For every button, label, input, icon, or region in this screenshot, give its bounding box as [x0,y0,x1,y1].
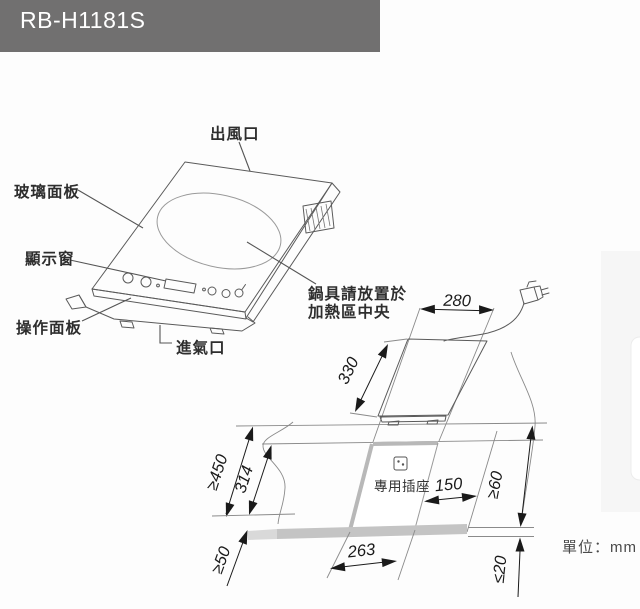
svg-text:314: 314 [231,464,257,496]
svg-text:280: 280 [442,292,472,311]
dim-263-text: 263 [346,541,377,562]
leader-air-inlet [160,325,172,343]
svg-text:150: 150 [434,475,464,495]
dim-263: 263 [330,541,397,572]
label-air-outlet: 出風口 [210,124,260,143]
glass-top [92,162,332,312]
hob-foot-right [210,328,224,334]
label-display-window: 顯示窗 [25,249,75,268]
leader-air-outlet [239,142,250,171]
svg-text:≤20: ≤20 [490,554,511,584]
unit-note: 單位：mm [562,539,637,556]
hob-illustration: 出風口 玻璃面板 顯示窗 操作面板 進氣口 鍋具請放置於 加熱區中央 [14,124,407,357]
label-pot-note-2: 加熱區中央 [307,302,391,321]
side-vent [303,201,334,233]
cooktop-top [378,339,487,416]
ext-263-left [327,532,350,578]
dim-314: 314 [231,445,271,515]
control-panel-elements [123,273,246,298]
label-air-inlet: 進氣口 [176,338,226,357]
counter-band-left [248,529,277,540]
leader-glass-panel [78,190,143,228]
page: RB-H1181S [0,0,640,609]
diagram-canvas: 出風口 玻璃面板 顯示窗 操作面板 進氣口 鍋具請放置於 加熱區中央 [0,0,640,609]
cooktop-base [380,416,446,422]
dim-50: ≥50 [208,530,247,586]
ext-right [439,308,494,441]
socket-icon [394,457,407,470]
ext-263-right [398,530,415,580]
right-edge-panel [601,251,640,512]
leader-display-window [70,260,166,281]
svg-text:≥60: ≥60 [484,469,507,500]
dim-330: 330 [334,339,407,417]
socket-label: 專用插座 [374,479,430,494]
leader-pot-note [247,242,316,284]
label-glass-panel: 玻璃面板 [14,182,80,201]
dim-280: 280 [420,292,494,315]
power-plug [520,281,549,304]
cutout-top-edge [373,443,438,444]
svg-text:330: 330 [334,354,363,387]
hob-front-bezel [92,289,246,319]
band-extension-lines [468,528,534,537]
installation-diagram: 280 330 ≥450 314 [203,281,637,597]
leader-control-panel [82,298,131,321]
heating-zone-circle [150,182,289,280]
dim-150: 150 [424,475,477,505]
svg-text:≥50: ≥50 [208,544,235,577]
label-pot-note-1: 鍋具請放置於 [308,284,407,303]
svg-text:≥450: ≥450 [203,451,232,492]
dim-20: ≤20 [490,538,525,598]
ext-516 [212,514,295,516]
hob-foot-left [120,321,134,328]
counter-left-break [263,422,293,524]
label-control-panel: 操作面板 [16,318,82,337]
